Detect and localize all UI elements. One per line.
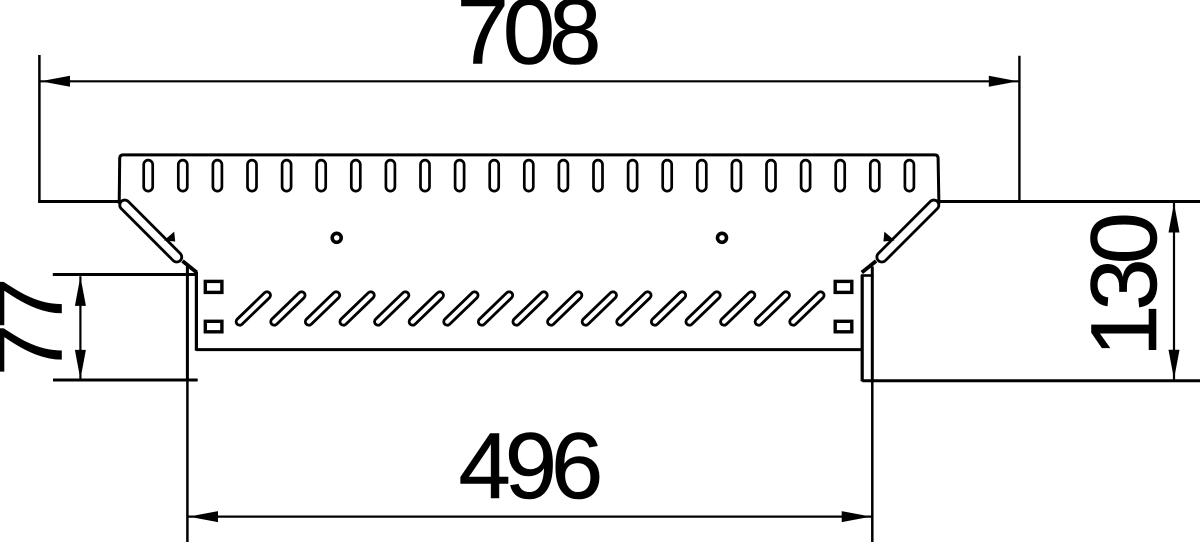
svg-text:130: 130 (1071, 215, 1176, 357)
svg-text:77: 77 (0, 282, 82, 376)
svg-text:708: 708 (457, 0, 599, 84)
svg-text:496: 496 (458, 413, 600, 518)
